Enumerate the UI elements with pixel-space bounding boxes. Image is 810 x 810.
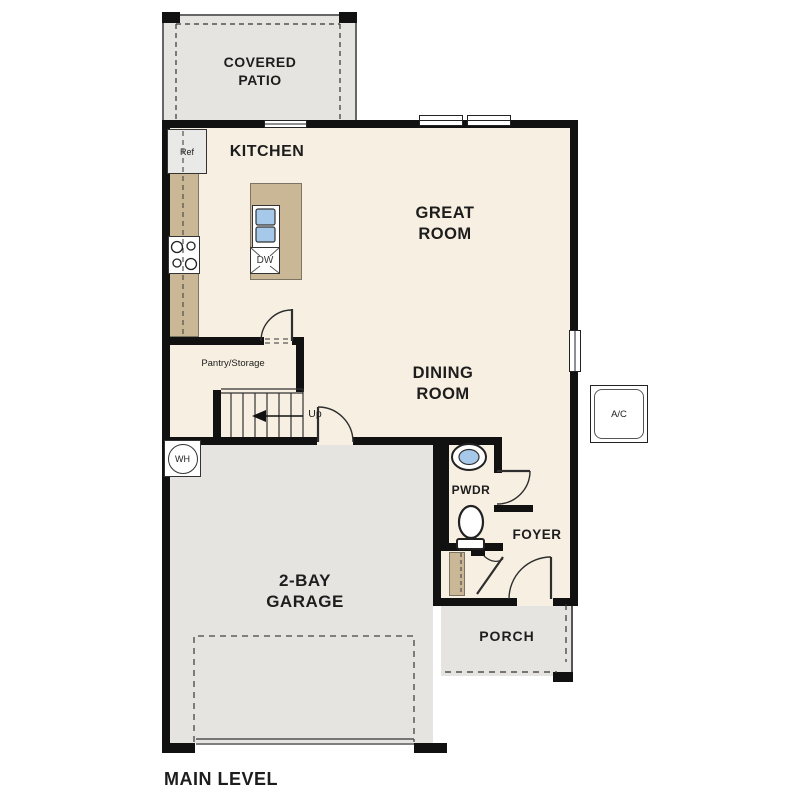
dishwasher: DW	[250, 247, 280, 274]
great-room-window-1	[419, 115, 463, 126]
garage-door-opening	[317, 437, 353, 445]
wall-pantry-right	[296, 337, 304, 392]
ac-unit-label: A/C	[611, 409, 627, 420]
dishwasher-label: DW	[257, 255, 274, 266]
water-heater-circle: WH	[168, 444, 198, 474]
dining-room-label: DINING ROOM	[402, 363, 484, 404]
patio-post-right	[339, 12, 357, 23]
coat-closet	[449, 552, 465, 596]
refrigerator: Ref	[167, 129, 207, 174]
pantry-opening	[264, 337, 292, 345]
garage-corner-left	[162, 743, 195, 753]
covered-patio-label: COVERED PATIO	[215, 54, 305, 89]
wall-hall-stub	[494, 505, 533, 512]
wall-top	[162, 120, 578, 128]
wall-front-right	[553, 598, 578, 606]
floor-plan: Ref DW WH A/C	[0, 0, 810, 810]
front-door-opening	[517, 598, 553, 606]
great-room-window-2	[467, 115, 511, 126]
wall-front-left	[433, 598, 517, 606]
water-heater-label: WH	[175, 454, 190, 464]
garage-label: 2-BAY GARAGE	[253, 570, 357, 613]
wall-garage-right	[433, 437, 441, 606]
kitchen-label: KITCHEN	[222, 142, 312, 162]
foyer-label: FOYER	[504, 527, 570, 544]
wall-pwdr-right	[494, 445, 502, 473]
garage-corner-right	[414, 743, 447, 753]
kitchen-window	[264, 120, 307, 128]
island-sink	[252, 205, 280, 248]
powder-label: PWDR	[447, 483, 495, 498]
ac-unit-inner: A/C	[594, 389, 644, 439]
patio-post-left	[162, 12, 180, 23]
great-room-label: GREAT ROOM	[404, 203, 486, 244]
pantry-label: Pantry/Storage	[183, 358, 283, 370]
stove	[168, 236, 200, 274]
wall-closet-stub	[471, 548, 485, 556]
water-heater: WH	[164, 440, 201, 477]
wall-stairs-left	[213, 390, 221, 445]
refrigerator-label: Ref	[180, 147, 194, 157]
wall-pwdr-left	[441, 445, 449, 551]
stairs-up-label: Up	[302, 408, 328, 421]
plan-title: MAIN LEVEL	[164, 768, 344, 791]
porch-corner	[553, 672, 573, 682]
ac-unit: A/C	[590, 385, 648, 443]
porch-label: PORCH	[468, 628, 546, 646]
dining-window	[569, 330, 581, 372]
